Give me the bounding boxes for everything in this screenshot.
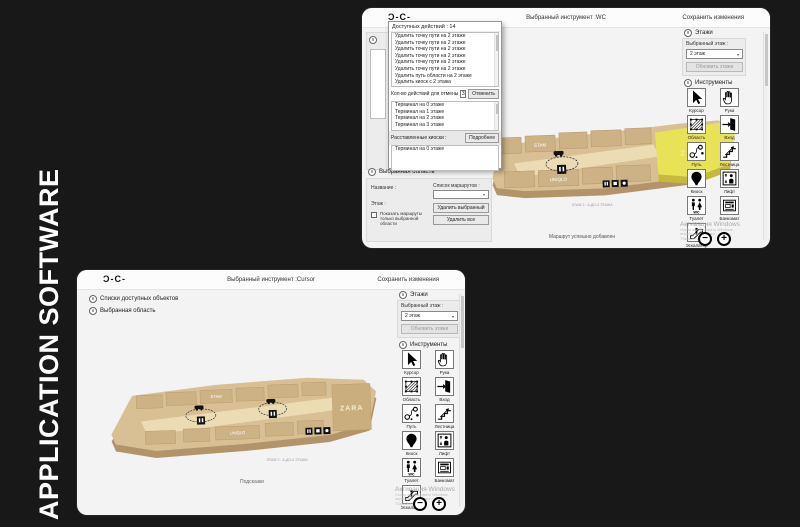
chevron-up-icon[interactable]: ∧ [368, 168, 376, 176]
undo-row: Кол-во действий для отмены 3 Отменить [389, 87, 501, 101]
list-item[interactable]: Удалить точку пути на 2 этаже [392, 46, 498, 53]
objects-section-header[interactable]: ∨ Списки доступных объектов [89, 295, 178, 303]
tool-elevator[interactable]: Лифт [430, 431, 459, 456]
floor-select-value: 2 этаж [690, 51, 705, 57]
list-fragment [370, 49, 386, 119]
list-item[interactable]: Терминал на 0 этаже [392, 102, 498, 109]
refresh-floors-button[interactable]: Обновить этажи [401, 324, 458, 334]
selected-area-section-header[interactable]: ∨ Выбранная область [89, 307, 156, 315]
entrance-icon [435, 377, 454, 396]
tool-elevator[interactable]: Лифт [715, 169, 744, 194]
tool-stairs[interactable]: Лестница [715, 142, 744, 167]
tool-hand[interactable]: Рука [715, 88, 744, 113]
hand-icon [720, 88, 739, 107]
list-item[interactable]: Терминал на 0 этаже [392, 146, 498, 153]
tool-label: Рука [725, 108, 735, 113]
tool-path[interactable]: Путь [397, 404, 426, 429]
tool-label: Лестница [720, 162, 740, 167]
entrance-icon [720, 115, 739, 134]
tool-label: Рука [440, 370, 450, 375]
tool-toilet[interactable]: Туалет [682, 196, 711, 221]
floor-label: Этаж : [371, 201, 386, 207]
zoom-controls: − + [413, 497, 446, 511]
floors-section-header[interactable]: ∧ Этажи [684, 29, 713, 37]
tool-label: Область [403, 397, 421, 402]
tool-label: Область [688, 135, 706, 140]
list-item[interactable]: Терминал на 3 этаже [392, 122, 498, 129]
path-icon [687, 142, 706, 161]
actions-header: Доступных действий : 14 [389, 22, 501, 32]
kiosk-icon [687, 169, 706, 188]
undo-count-input[interactable]: 3 [460, 90, 466, 98]
placed-kiosks-label: Расставленные киоски : [391, 135, 463, 141]
floors-panel: Выбранный этаж : 2 этаж ▾ Обновить этажи [397, 300, 461, 338]
side-label: APPLICATION SOFTWARE [34, 188, 65, 520]
available-actions-dropdown[interactable]: Доступных действий : 14 Удалить точку пу… [388, 21, 502, 169]
tool-cursor[interactable]: Курсор [682, 88, 711, 113]
list-item[interactable]: Удалить киоск с 2 этажа [392, 79, 498, 86]
zoom-out-button[interactable]: − [698, 232, 712, 246]
tool-label: Путь [407, 424, 417, 429]
status-message: Маршрут успешно добавлен [492, 234, 672, 240]
tools-title: Инструменты [695, 80, 732, 86]
zoom-in-button[interactable]: + [717, 232, 731, 246]
tool-label: Лифт [724, 189, 735, 194]
store-label-zara: ZARA [340, 405, 364, 413]
toilet-icon [402, 458, 421, 477]
tool-label: Курсор [404, 370, 419, 375]
placed-kiosks-row: Расставленные киоски : Подробнее [389, 131, 501, 145]
chevron-down-icon[interactable]: ∨ [89, 307, 97, 315]
floors-title: Этажи [695, 30, 713, 36]
zoom-controls: − + [698, 232, 731, 246]
tool-label: Вход [439, 397, 449, 402]
tool-atm[interactable]: Банкомат [715, 196, 744, 221]
selected-area-title: Выбранная область [100, 308, 156, 314]
save-changes-button[interactable]: Сохранить изменения [682, 15, 744, 21]
watermark-title: Активация Windows [680, 221, 750, 228]
list-item[interactable]: Удалить точку пути на 2 этаже [392, 40, 498, 47]
tool-area[interactable]: Область [682, 115, 711, 140]
tool-entrance[interactable]: Вход [715, 115, 744, 140]
kiosk-icon [402, 431, 421, 450]
selected-area-panel: Название : Список маршрутов : ▾ Этаж : П… [366, 178, 492, 242]
list-item[interactable]: Терминал на 1 этаже [392, 109, 498, 116]
selected-floor-label: Выбранный этаж : [401, 303, 443, 309]
wc-marker-icon [557, 165, 566, 174]
window-wc-tool: Ɔ-C- Выбранный инструмент :WC Сохранить … [362, 8, 770, 248]
tool-label: Путь [692, 162, 702, 167]
refresh-floors-button[interactable]: Обновить этажи [686, 62, 743, 72]
chevron-up-icon[interactable]: ∧ [399, 291, 407, 299]
map-caption: ЭТАЖ 2 : А-ДО-4 ЭТАЖА [207, 458, 367, 462]
tool-toilet[interactable]: Туалет [397, 458, 426, 483]
path-icon [402, 404, 421, 423]
delete-all-button[interactable]: Удалить все [433, 215, 489, 225]
watermark-title: Активация Windows [395, 486, 465, 493]
tool-hand[interactable]: Рука [430, 350, 459, 375]
tool-label: Киоск [691, 189, 703, 194]
atm-icon [720, 196, 739, 215]
list-item[interactable]: Удалить точку пути на 2 этаже [392, 33, 498, 40]
atm-icon [435, 458, 454, 477]
chevron-down-icon: ▾ [452, 314, 454, 319]
desktop-background: APPLICATION SOFTWARE Ɔ-C- Выбранный инст… [0, 0, 800, 527]
scrollbar[interactable] [494, 33, 498, 86]
name-label: Название : [371, 185, 396, 191]
tool-kiosk[interactable]: Киоск [682, 169, 711, 194]
list-item[interactable]: Удалить точку пути на 2 этаже [392, 53, 498, 60]
scrollbar-thumb[interactable] [496, 104, 499, 114]
tools-title: Инструменты [410, 342, 447, 348]
list-item[interactable]: Удалить точку пути на 2 этаже [392, 66, 498, 73]
cursor-icon [402, 350, 421, 369]
scrollbar-thumb[interactable] [461, 296, 464, 348]
list-item[interactable]: Удалить путь области на 2 этаже [392, 73, 498, 80]
window-header: Ɔ-C- Выбранный инструмент :Cursor Сохран… [77, 270, 465, 290]
store-label-uniqlo: UNIQLO [550, 177, 568, 183]
tool-atm[interactable]: Банкомат [430, 458, 459, 483]
hand-icon [435, 350, 454, 369]
objects-section-title: Списки доступных объектов [100, 296, 178, 302]
floor-select-value: 2 этаж [405, 313, 420, 319]
toilet-icon [687, 196, 706, 215]
tools-section-header[interactable]: ∧ Инструменты [399, 341, 447, 349]
tool-label: Курсор [689, 108, 704, 113]
tool-label: Туалет [404, 478, 418, 483]
selected-tool-title: Выбранный инструмент :Cursor [157, 277, 385, 283]
chevron-down-icon: ▾ [737, 52, 739, 57]
save-changes-button[interactable]: Сохранить изменения [377, 277, 439, 283]
floor-select[interactable]: 2 этаж ▾ [686, 49, 743, 59]
list-item[interactable]: Удалить точку пути на 2 этаже [392, 59, 498, 66]
floor-select[interactable]: 2 этаж ▾ [401, 311, 458, 321]
vertical-scrollbar[interactable] [763, 32, 767, 240]
vertical-scrollbar[interactable] [459, 294, 463, 507]
tool-path[interactable]: Путь [682, 142, 711, 167]
tool-stairs[interactable]: Лестница [430, 404, 459, 429]
app-logo: Ɔ-C- [103, 274, 126, 284]
wc-marker-icon [197, 416, 205, 424]
scrollbar-thumb[interactable] [496, 35, 499, 51]
tool-entrance[interactable]: Вход [430, 377, 459, 402]
tool-kiosk[interactable]: Киоск [397, 431, 426, 456]
store-label-etam: ETAM [211, 394, 222, 399]
facility-icons [305, 427, 330, 435]
area-icon [402, 377, 421, 396]
show-routes-label: Показать маршруты только выбранной облас… [380, 211, 426, 227]
facility-icons [603, 180, 628, 188]
elevator-icon [435, 431, 454, 450]
chevron-up-icon[interactable]: ∧ [399, 341, 407, 349]
list-item[interactable]: Терминал на 2 этаже [392, 115, 498, 122]
terminals-list[interactable]: Терминал на 0 этаже Терминал на 1 этаже … [391, 101, 499, 131]
chevron-up-icon[interactable]: ∧ [369, 36, 377, 44]
zoom-out-button[interactable]: − [413, 497, 427, 511]
routes-label: Список маршрутов : [433, 183, 480, 189]
tool-area[interactable]: Область [397, 377, 426, 402]
show-routes-checkbox[interactable] [371, 212, 377, 218]
stairs-icon [435, 404, 454, 423]
routes-select[interactable]: ▾ [433, 190, 489, 199]
zoom-in-button[interactable]: + [432, 497, 446, 511]
selected-floor-label: Выбранный этаж : [686, 41, 728, 47]
actions-list[interactable]: Удалить точку пути на 2 этаже Удалить то… [391, 32, 499, 87]
floors-section-header[interactable]: ∧ Этажи [399, 291, 428, 299]
cursor-icon [687, 88, 706, 107]
floors-title: Этажи [410, 292, 428, 298]
elevator-icon [720, 169, 739, 188]
area-icon [687, 115, 706, 134]
tool-label: Банкомат [434, 478, 454, 483]
store-label-uniqlo: UNIQLO [230, 430, 246, 436]
floor-plan-full[interactable]: ZARA ETAM UNIQLO [97, 370, 389, 470]
placed-kiosks-list[interactable]: Терминал на 0 этаже [391, 145, 499, 171]
undo-count-label: Кол-во действий для отмены [391, 91, 458, 97]
map-caption: ЭТАЖ 2 : А-ДО-4 ЭТАЖА [522, 203, 662, 207]
details-button[interactable]: Подробнее [465, 133, 499, 143]
window-cursor-tool: Ɔ-C- Выбранный инструмент :Cursor Сохран… [77, 270, 465, 515]
scrollbar-thumb[interactable] [765, 34, 768, 86]
tool-cursor[interactable]: Курсор [397, 350, 426, 375]
tool-label: Вход [724, 135, 734, 140]
tool-label: Лестница [435, 424, 455, 429]
stairs-icon [720, 142, 739, 161]
wc-marker-icon [269, 410, 277, 418]
tool-label: Лифт [439, 451, 450, 456]
chevron-down-icon[interactable]: ∨ [89, 295, 97, 303]
store-label-etam: ETAM [534, 142, 547, 147]
chevron-up-icon[interactable]: ∧ [684, 29, 692, 37]
chevron-up-icon[interactable]: ∧ [684, 79, 692, 87]
hints-link[interactable]: Подсказки [187, 479, 317, 485]
tools-section-header[interactable]: ∧ Инструменты [684, 79, 732, 87]
undo-button[interactable]: Отменить [468, 89, 499, 99]
delete-selected-button[interactable]: Удалить выбранный [433, 203, 489, 213]
scrollbar[interactable] [494, 102, 498, 130]
tool-label: Киоск [406, 451, 418, 456]
floors-panel: Выбранный этаж : 2 этаж ▾ Обновить этажи [682, 38, 746, 76]
